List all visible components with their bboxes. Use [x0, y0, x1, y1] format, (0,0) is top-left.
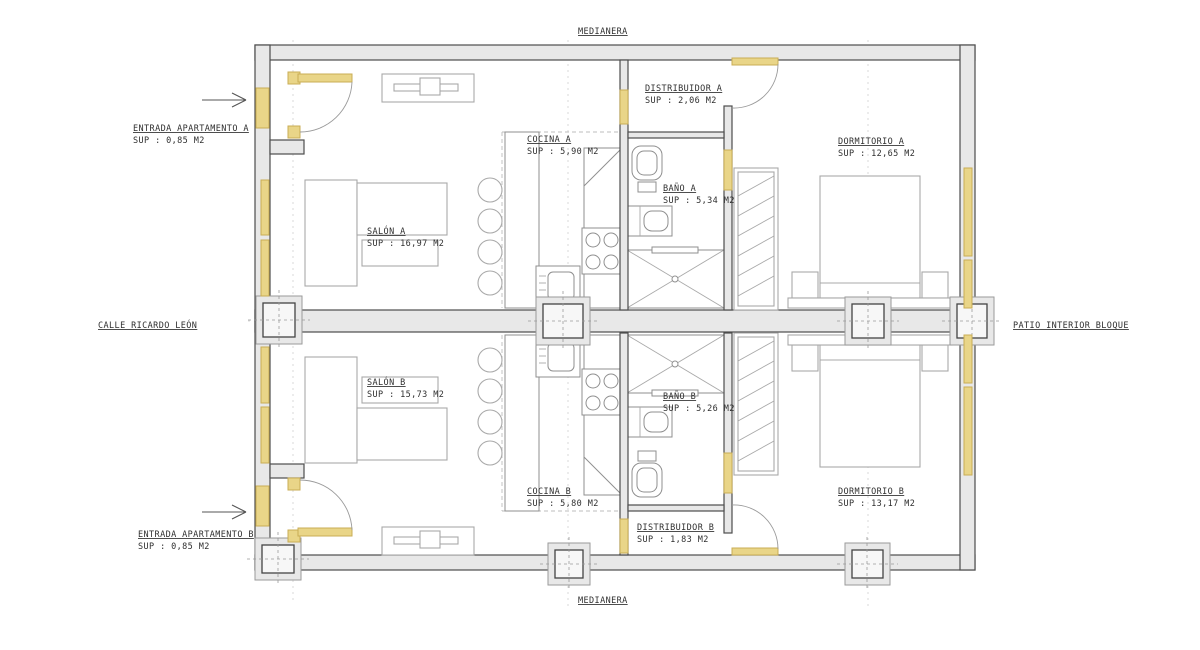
vestibule-b-stub — [270, 464, 304, 478]
shower-screen-a — [652, 247, 698, 253]
svg-text:BAÑO B: BAÑO B — [663, 391, 696, 402]
nightstand — [792, 345, 818, 371]
svg-text:DORMITORIO B: DORMITORIO B — [838, 487, 904, 497]
counter-b — [505, 335, 539, 511]
boundary-label-bottom: MEDIANERA — [578, 596, 628, 606]
boundary-label-top: MEDIANERA — [578, 27, 628, 37]
svg-text:BAÑO A: BAÑO A — [663, 183, 696, 194]
door-arc — [300, 480, 352, 530]
nightstand — [922, 272, 948, 298]
window — [964, 260, 972, 308]
svg-text:DISTRIBUIDOR A: DISTRIBUIDOR A — [645, 84, 722, 94]
bedroom-door-b — [732, 548, 778, 555]
svg-text:COCINA B: COCINA B — [527, 487, 571, 497]
svg-text:SUP : 13,17 M2: SUP : 13,17 M2 — [838, 499, 915, 509]
pillar — [248, 290, 310, 350]
room-label-entrada-b: ENTRADA APARTAMENTO B SUP : 0,85 M2 — [138, 530, 254, 552]
sofa-b-2 — [357, 408, 447, 460]
svg-text:ENTRADA APARTAMENTO A: ENTRADA APARTAMENTO A — [133, 124, 249, 134]
window — [964, 387, 972, 475]
cocina-b-fixtures — [505, 335, 622, 511]
sofa-b — [305, 357, 357, 463]
hall-door-b — [620, 519, 628, 553]
stool — [478, 178, 502, 202]
room-label-entrada-a: ENTRADA APARTAMENTO A SUP : 0,85 M2 — [133, 124, 249, 146]
window — [261, 180, 269, 235]
svg-text:COCINA A: COCINA A — [527, 135, 571, 145]
bath-door-b — [724, 453, 732, 493]
floor-plan-canvas: MEDIANERA MEDIANERA CALLE RICARDO LEÓN P… — [0, 0, 1200, 650]
counter-a — [505, 132, 539, 308]
boundary-label-left: CALLE RICARDO LEÓN — [98, 319, 197, 331]
hall-door-a — [620, 90, 628, 124]
wall-top — [255, 45, 975, 60]
bed-b — [820, 345, 920, 467]
svg-text:SUP : 5,26 M2: SUP : 5,26 M2 — [663, 404, 735, 414]
door-arc — [732, 64, 778, 108]
svg-text:SUP : 2,06 M2: SUP : 2,06 M2 — [645, 96, 717, 106]
room-label-distribuidor-a: DISTRIBUIDOR A SUP : 2,06 M2 — [645, 84, 722, 106]
pillar — [837, 537, 898, 591]
svg-text:SUP : 5,34 M2: SUP : 5,34 M2 — [663, 196, 735, 206]
stool — [478, 209, 502, 233]
entrance-arrow-icon — [202, 93, 246, 107]
nightstand — [792, 272, 818, 298]
stool — [478, 379, 502, 403]
svg-text:SUP : 15,73 M2: SUP : 15,73 M2 — [367, 390, 444, 400]
svg-text:SUP : 12,65 M2: SUP : 12,65 M2 — [838, 149, 915, 159]
svg-text:SUP : 0,85 M2: SUP : 0,85 M2 — [138, 542, 210, 552]
street-door-a — [256, 88, 269, 128]
street-door-b — [256, 486, 269, 526]
svg-text:SALÓN A: SALÓN A — [367, 225, 406, 237]
door-arc — [732, 505, 778, 549]
window — [261, 240, 269, 296]
salon-a-furniture — [305, 74, 502, 295]
entrance-arrow-icon — [202, 505, 246, 519]
svg-text:SUP : 5,80 M2: SUP : 5,80 M2 — [527, 499, 599, 509]
room-label-distribuidor-b: DISTRIBUIDOR B SUP : 1,83 M2 — [637, 523, 714, 545]
vestibule-a-stub — [270, 140, 304, 154]
cocina-a-fixtures — [505, 132, 622, 308]
svg-text:SUP : 16,97 M2: SUP : 16,97 M2 — [367, 239, 444, 249]
svg-text:SUP : 0,85 M2: SUP : 0,85 M2 — [133, 136, 205, 146]
bath-door-a — [724, 150, 732, 190]
svg-text:SALÓN B: SALÓN B — [367, 376, 406, 388]
door-arc — [300, 82, 352, 132]
svg-text:DORMITORIO A: DORMITORIO A — [838, 137, 904, 147]
svg-text:SUP : 1,83 M2: SUP : 1,83 M2 — [637, 535, 709, 545]
window — [964, 335, 972, 383]
stool — [478, 240, 502, 264]
stool — [478, 348, 502, 372]
nightstand — [922, 345, 948, 371]
pillar — [528, 291, 598, 351]
svg-text:ENTRADA APARTAMENTO B: ENTRADA APARTAMENTO B — [138, 530, 254, 540]
bed-a — [820, 176, 920, 298]
stool — [478, 441, 502, 465]
dormitorio-b-furniture — [734, 333, 952, 475]
svg-text:SUP : 5,90 M2: SUP : 5,90 M2 — [527, 147, 599, 157]
room-label-dormitorio-b: DORMITORIO B SUP : 13,17 M2 — [838, 487, 915, 509]
window — [261, 407, 269, 463]
pillar — [837, 291, 899, 351]
window — [261, 347, 269, 403]
room-label-dormitorio-a: DORMITORIO A SUP : 12,65 M2 — [838, 137, 915, 159]
entrance-door-a — [298, 74, 352, 82]
bano-b-fixtures — [627, 335, 724, 497]
bano-a-fixtures — [627, 146, 724, 308]
window — [964, 168, 972, 256]
bedroom-door-a — [732, 58, 778, 65]
entrance-door-b — [298, 528, 352, 536]
svg-text:DISTRIBUIDOR B: DISTRIBUIDOR B — [637, 523, 714, 533]
sofa-a — [305, 180, 357, 286]
boundary-label-right: PATIO INTERIOR BLOQUE — [1013, 321, 1129, 331]
pillar — [540, 537, 598, 591]
dormitorio-a-furniture — [734, 168, 952, 310]
stool — [478, 271, 502, 295]
stool — [478, 410, 502, 434]
